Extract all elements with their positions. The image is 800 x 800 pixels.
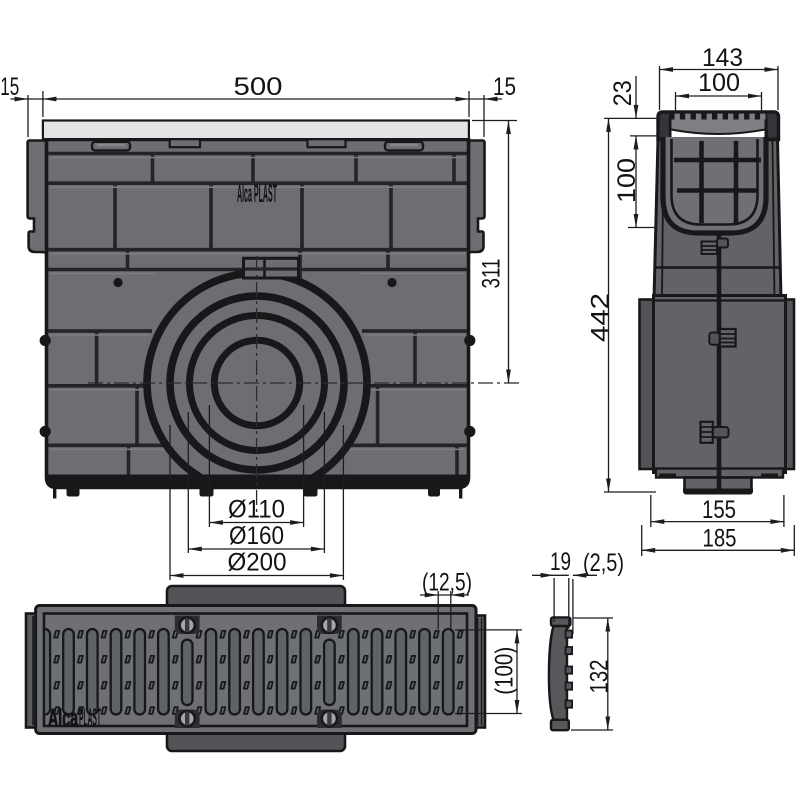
svg-text:Alca PLAST: Alca PLAST [237, 180, 277, 208]
svg-text:(12,5): (12,5) [422, 569, 472, 597]
svg-text:500: 500 [234, 73, 283, 101]
svg-text:185: 185 [703, 525, 737, 553]
svg-text:Ø110: Ø110 [228, 496, 285, 524]
svg-text:23: 23 [609, 80, 637, 106]
svg-text:Alca: Alca [48, 705, 79, 733]
svg-text:100: 100 [698, 69, 740, 97]
svg-text:(2,5): (2,5) [583, 549, 624, 577]
svg-text:19: 19 [550, 548, 571, 576]
svg-text:Ø160: Ø160 [229, 522, 284, 550]
svg-text:Ø200: Ø200 [228, 549, 287, 577]
svg-text:442: 442 [586, 293, 614, 342]
svg-text:155: 155 [702, 496, 736, 524]
svg-text:15: 15 [0, 73, 19, 101]
svg-text:PLAST: PLAST [79, 704, 101, 732]
svg-text:100: 100 [613, 158, 641, 203]
svg-text:311: 311 [477, 259, 505, 289]
svg-text:(100): (100) [491, 647, 519, 695]
svg-text:15: 15 [493, 73, 516, 101]
svg-text:143: 143 [702, 44, 743, 72]
svg-text:132: 132 [585, 660, 613, 694]
